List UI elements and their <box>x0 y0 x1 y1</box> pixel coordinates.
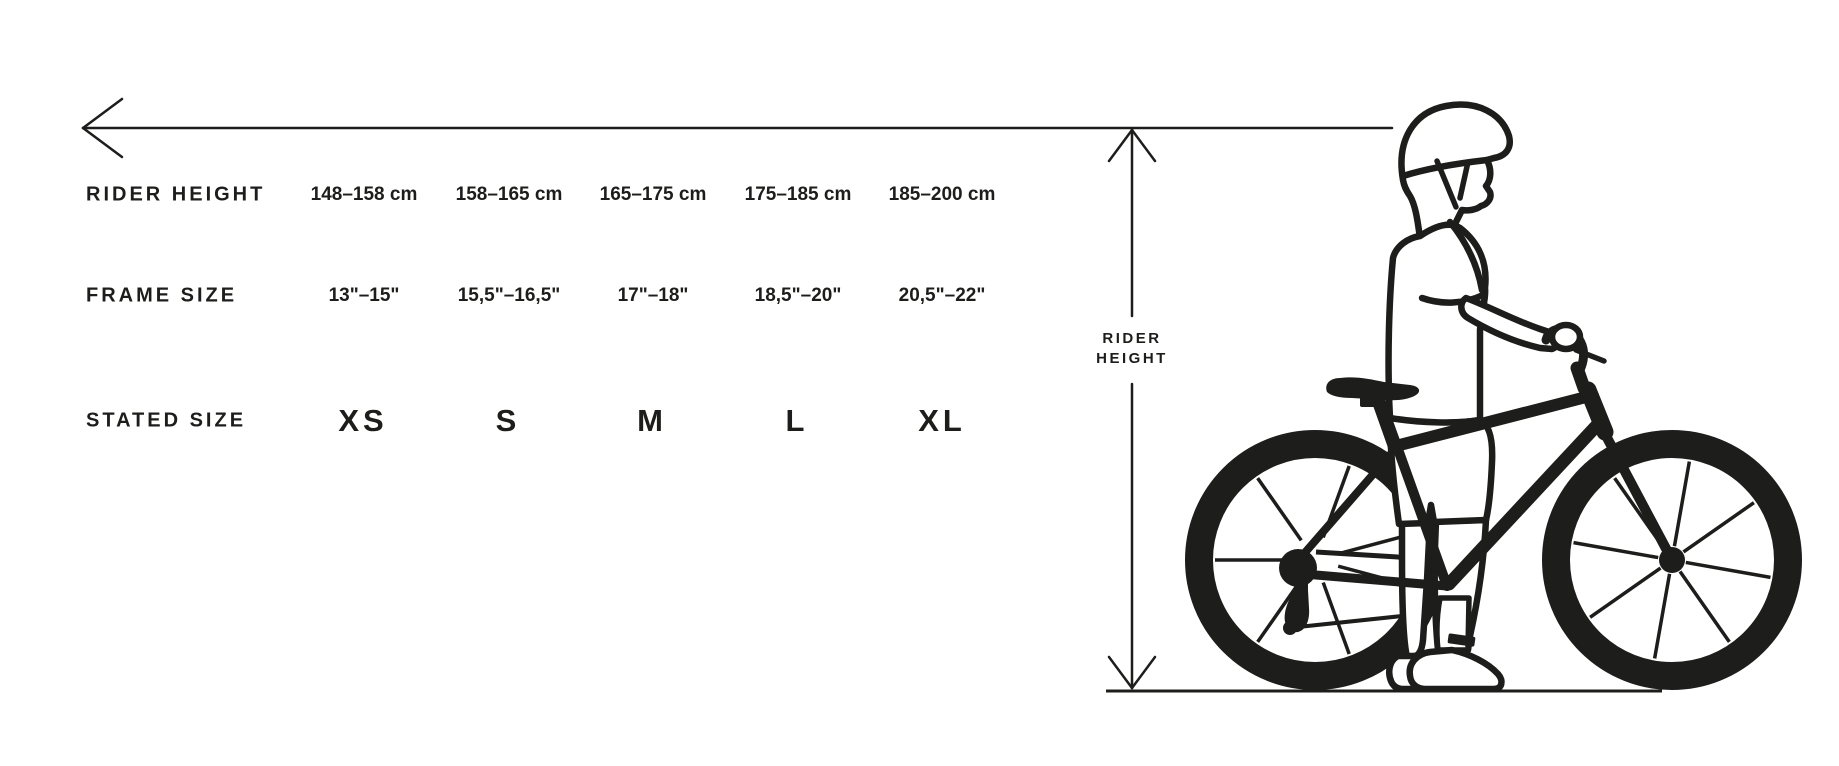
size-guide-page: RIDER HEIGHT RIDER HEIGHT 148–158 cm 158… <box>0 0 1839 766</box>
stated-size-m: M <box>637 403 667 439</box>
rider-height-value-xs: 148–158 cm <box>311 184 418 206</box>
measure-label-line1: RIDER <box>1096 329 1168 349</box>
rider-height-value-s: 158–165 cm <box>456 184 563 206</box>
row-label-rider-height: RIDER HEIGHT <box>86 184 265 207</box>
rider-height-value-m: 165–175 cm <box>600 184 707 206</box>
frame-size-value-l: 18,5"–20" <box>755 285 842 307</box>
row-label-stated-size: STATED SIZE <box>86 410 246 433</box>
frame-size-value-m: 17"–18" <box>618 285 689 307</box>
vertical-measure-arrow <box>1109 129 1155 688</box>
rider-height-value-xl: 185–200 cm <box>889 184 996 206</box>
frame-size-value-xs: 13"–15" <box>329 285 400 307</box>
rider-height-value-l: 175–185 cm <box>745 184 852 206</box>
stated-size-xl: XL <box>918 403 966 439</box>
stated-size-s: S <box>496 403 521 439</box>
frame-size-value-xl: 20,5"–22" <box>899 285 986 307</box>
frame-size-value-s: 15,5"–16,5" <box>458 285 561 307</box>
size-guide-artwork <box>0 0 1839 766</box>
seat-stay <box>1302 448 1396 556</box>
rider-figure <box>1389 105 1558 689</box>
measure-label-line2: HEIGHT <box>1096 349 1168 369</box>
rider-height-measure-label: RIDER HEIGHT <box>1090 327 1174 371</box>
cassette <box>1279 549 1317 587</box>
rider-hand <box>1552 325 1580 349</box>
saddle-clamp <box>1360 396 1384 407</box>
near-shoe <box>1410 650 1502 689</box>
stated-size-l: L <box>786 403 809 439</box>
row-label-frame-size: FRAME SIZE <box>86 285 237 308</box>
stated-size-xs: XS <box>338 403 387 439</box>
horizontal-measure-arrow <box>83 99 1392 157</box>
